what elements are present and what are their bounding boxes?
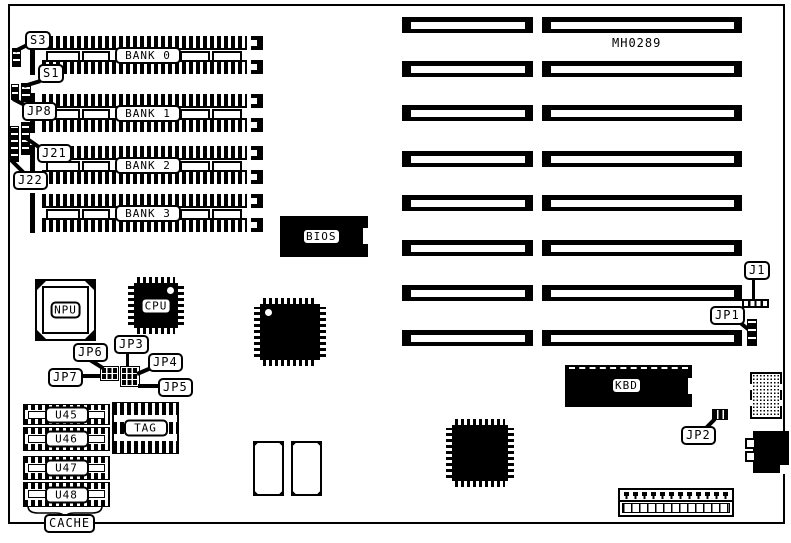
- jumper-row: [122, 380, 138, 385]
- bank1-label: BANK 1: [115, 105, 181, 122]
- simm-socket-bank3: BANK 3: [30, 193, 263, 233]
- isa-slot: [542, 240, 742, 256]
- kbd-chip: KBD: [565, 365, 692, 407]
- jumper-row: [122, 374, 138, 379]
- isa-slot: [542, 61, 742, 77]
- connector-tab: [745, 451, 756, 462]
- jumper-row: [102, 374, 117, 379]
- bank2-label: BANK 2: [115, 157, 181, 174]
- isa-slot: [542, 330, 742, 346]
- simm-socket-bank0: BANK 0: [30, 35, 263, 75]
- pin-teeth: [137, 328, 175, 334]
- qfp-chip: [446, 419, 514, 487]
- jp3-jp4-jp5-block: [120, 366, 140, 387]
- cache-chip-u47: U47: [23, 456, 110, 480]
- callout-jp8: JP8: [22, 102, 57, 121]
- cache-chip-u46: U46: [23, 427, 110, 451]
- j1-connector: [742, 299, 769, 308]
- isa-slot: [542, 285, 742, 301]
- isa-slot: [402, 285, 533, 301]
- callout-jp3: JP3: [114, 335, 149, 354]
- pin1-dot: [265, 309, 272, 316]
- socket-latch: [251, 118, 263, 132]
- chip-notch: [363, 228, 370, 244]
- callout-pointer: [80, 374, 101, 378]
- pin-teeth: [263, 360, 317, 366]
- pin-teeth: [455, 481, 505, 487]
- socket-latch: [251, 170, 263, 184]
- callout-j22: J22: [13, 171, 48, 190]
- callout-s3: S3: [25, 31, 51, 50]
- socket-latch: [251, 36, 263, 50]
- pin-stems: [622, 496, 730, 499]
- socket-latch: [251, 194, 263, 208]
- u45-label: U45: [45, 406, 89, 423]
- isa-slot: [542, 195, 742, 211]
- isa-slot: [402, 151, 533, 167]
- isa-slot: [542, 151, 742, 167]
- qfp-chip: [254, 298, 326, 366]
- j22-header: [10, 126, 19, 162]
- connector-notch: [779, 384, 783, 390]
- jumper-row: [102, 368, 117, 373]
- callout-pointer: [752, 278, 755, 299]
- callout-s1: S1: [38, 64, 64, 83]
- isa-slot: [542, 17, 742, 33]
- u46-label: U46: [45, 431, 89, 448]
- divider-line: [620, 500, 732, 502]
- isa-slot: [402, 17, 533, 33]
- pin-teeth: [508, 428, 514, 478]
- callout-jp4: JP4: [148, 353, 183, 372]
- callout-jp6: JP6: [73, 343, 108, 362]
- socket-end: [30, 193, 35, 233]
- jp1-jumper: [747, 319, 757, 346]
- connector-tab: [745, 438, 756, 449]
- isa-slot: [402, 240, 533, 256]
- callout-jp7: JP7: [48, 368, 83, 387]
- cpu-chip: CPU: [128, 277, 184, 334]
- isa-slot: [402, 330, 533, 346]
- u47-label: U47: [45, 460, 89, 477]
- pin-teeth: [320, 307, 326, 357]
- tag-chip: TAG: [112, 402, 179, 454]
- pin-cells: [622, 503, 730, 513]
- cpu-label: CPU: [141, 297, 172, 314]
- cache-chip-u45: U45: [23, 404, 110, 425]
- isa-slot: [402, 61, 533, 77]
- isa-slot: [542, 105, 742, 121]
- callout-pointer: [138, 384, 159, 388]
- bank3-label: BANK 3: [115, 205, 181, 222]
- tag-label: TAG: [124, 420, 168, 437]
- callout-jp5: JP5: [158, 378, 193, 397]
- connector-notch: [779, 400, 783, 406]
- motherboard-diagram: MH0289 BANK 0 BANK 1 BANK 2: [0, 0, 791, 543]
- power-header: [618, 488, 734, 517]
- bios-label: BIOS: [302, 228, 341, 245]
- socket-latch: [251, 60, 263, 74]
- callout-jp2: JP2: [681, 426, 716, 445]
- callout-cache: CACHE: [44, 514, 95, 533]
- keyboard-connector: [753, 431, 789, 473]
- callout-j1: J1: [744, 261, 770, 280]
- part-number: MH0289: [612, 36, 661, 50]
- callout-jp1: JP1: [710, 306, 745, 325]
- connector-notch: [749, 384, 753, 390]
- kbd-label: KBD: [611, 377, 642, 394]
- bios-chip: BIOS: [280, 216, 368, 257]
- simm-socket-bank1: BANK 1: [30, 93, 263, 133]
- npu-socket: NPU: [35, 279, 96, 341]
- socket-latch: [251, 146, 263, 160]
- callout-j21: J21: [37, 144, 72, 163]
- oscillator-socket: [291, 441, 322, 496]
- isa-slot: [402, 195, 533, 211]
- oscillator-socket: [253, 441, 284, 496]
- pin1-dot: [167, 287, 174, 294]
- socket-latch: [251, 218, 263, 232]
- bank0-label: BANK 0: [115, 47, 181, 64]
- chip-body: [452, 425, 508, 481]
- chip-dash-line: [569, 367, 688, 369]
- connector-notch: [749, 400, 753, 406]
- chip-notch: [688, 378, 694, 394]
- socket-latch: [251, 94, 263, 108]
- u48-label: U48: [45, 486, 89, 503]
- isa-slot: [402, 105, 533, 121]
- pin-teeth: [178, 286, 184, 325]
- npu-label: NPU: [50, 302, 81, 319]
- power-connector: [750, 372, 782, 419]
